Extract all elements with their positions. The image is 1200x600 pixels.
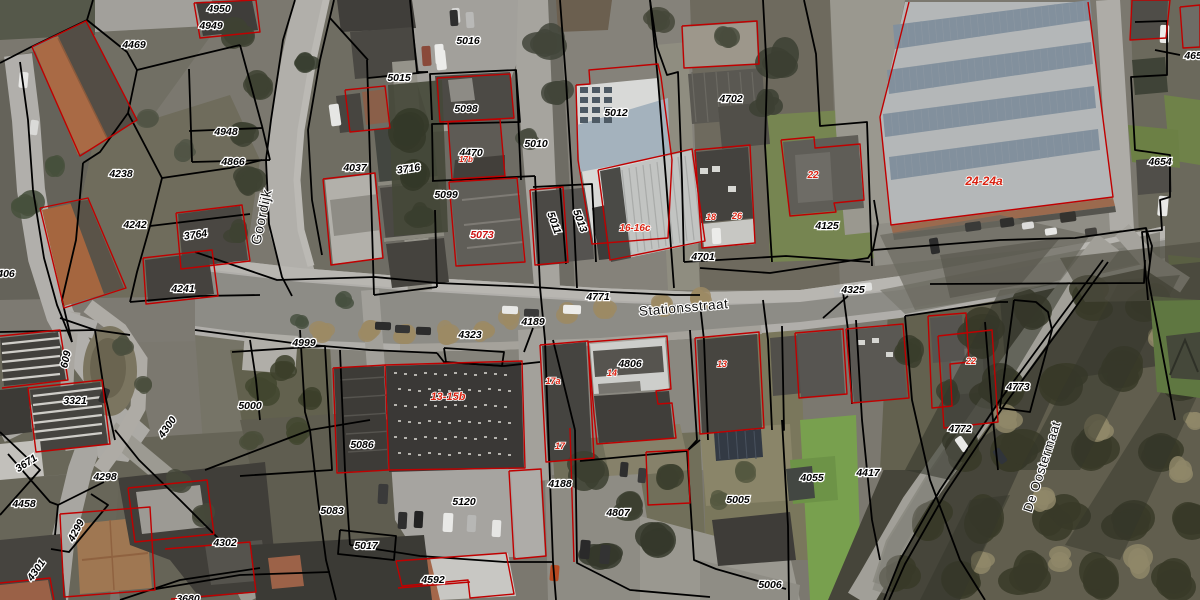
svg-text:4701: 4701 xyxy=(690,251,715,263)
svg-text:13-15b: 13-15b xyxy=(431,391,466,403)
svg-text:5073: 5073 xyxy=(470,229,494,241)
svg-text:13: 13 xyxy=(717,359,727,369)
svg-text:3680: 3680 xyxy=(176,593,200,600)
svg-text:5098: 5098 xyxy=(454,103,478,115)
svg-text:5015: 5015 xyxy=(387,72,411,84)
svg-text:4323: 4323 xyxy=(457,329,482,341)
svg-text:4866: 4866 xyxy=(220,156,245,168)
svg-text:4189: 4189 xyxy=(520,316,545,328)
svg-text:406: 406 xyxy=(0,268,15,280)
svg-text:4807: 4807 xyxy=(605,507,631,519)
svg-text:16-16c: 16-16c xyxy=(619,223,651,234)
svg-text:5099: 5099 xyxy=(434,189,458,201)
svg-text:4702: 4702 xyxy=(718,93,743,105)
svg-text:4773: 4773 xyxy=(1005,381,1030,393)
svg-text:5005: 5005 xyxy=(726,494,750,506)
svg-text:22: 22 xyxy=(806,170,819,181)
svg-text:5086: 5086 xyxy=(350,439,374,451)
svg-text:5016: 5016 xyxy=(456,35,480,47)
svg-text:26: 26 xyxy=(731,211,743,221)
svg-text:4298: 4298 xyxy=(92,471,117,483)
svg-text:24-24a: 24-24a xyxy=(964,174,1003,188)
svg-text:5120: 5120 xyxy=(452,496,476,508)
svg-text:4469: 4469 xyxy=(121,39,146,51)
svg-text:5010: 5010 xyxy=(524,138,548,150)
svg-text:4325: 4325 xyxy=(840,284,865,296)
svg-text:4772: 4772 xyxy=(947,423,972,435)
svg-text:4241: 4241 xyxy=(170,283,195,295)
svg-text:4242: 4242 xyxy=(122,219,147,231)
svg-text:4417: 4417 xyxy=(855,467,881,479)
svg-text:5083: 5083 xyxy=(320,505,344,517)
svg-text:18: 18 xyxy=(706,212,716,222)
svg-text:4055: 4055 xyxy=(799,472,824,484)
svg-text:17: 17 xyxy=(555,441,566,451)
svg-text:5017: 5017 xyxy=(354,540,379,552)
svg-text:5012: 5012 xyxy=(604,107,628,119)
svg-text:4948: 4948 xyxy=(213,126,238,138)
svg-text:3321: 3321 xyxy=(63,395,87,407)
svg-text:4654: 4654 xyxy=(1147,156,1172,168)
svg-text:4999: 4999 xyxy=(291,337,316,349)
svg-text:4238: 4238 xyxy=(108,168,133,180)
svg-text:4125: 4125 xyxy=(814,220,839,232)
svg-text:4188: 4188 xyxy=(547,478,572,490)
svg-text:4806: 4806 xyxy=(617,358,642,370)
svg-text:4592: 4592 xyxy=(420,574,445,586)
svg-text:4653: 4653 xyxy=(1183,50,1200,62)
svg-text:14: 14 xyxy=(607,368,617,378)
svg-text:4950: 4950 xyxy=(206,3,231,15)
svg-text:5006: 5006 xyxy=(758,579,782,591)
svg-text:17a: 17a xyxy=(545,376,560,386)
svg-text:4949: 4949 xyxy=(198,20,223,32)
svg-text:4458: 4458 xyxy=(11,498,36,510)
svg-text:5000: 5000 xyxy=(238,400,262,412)
svg-text:22: 22 xyxy=(965,356,976,366)
svg-text:17b: 17b xyxy=(459,155,473,164)
svg-text:4037: 4037 xyxy=(342,162,368,174)
svg-text:4771: 4771 xyxy=(585,291,610,303)
svg-text:4302: 4302 xyxy=(212,537,237,549)
